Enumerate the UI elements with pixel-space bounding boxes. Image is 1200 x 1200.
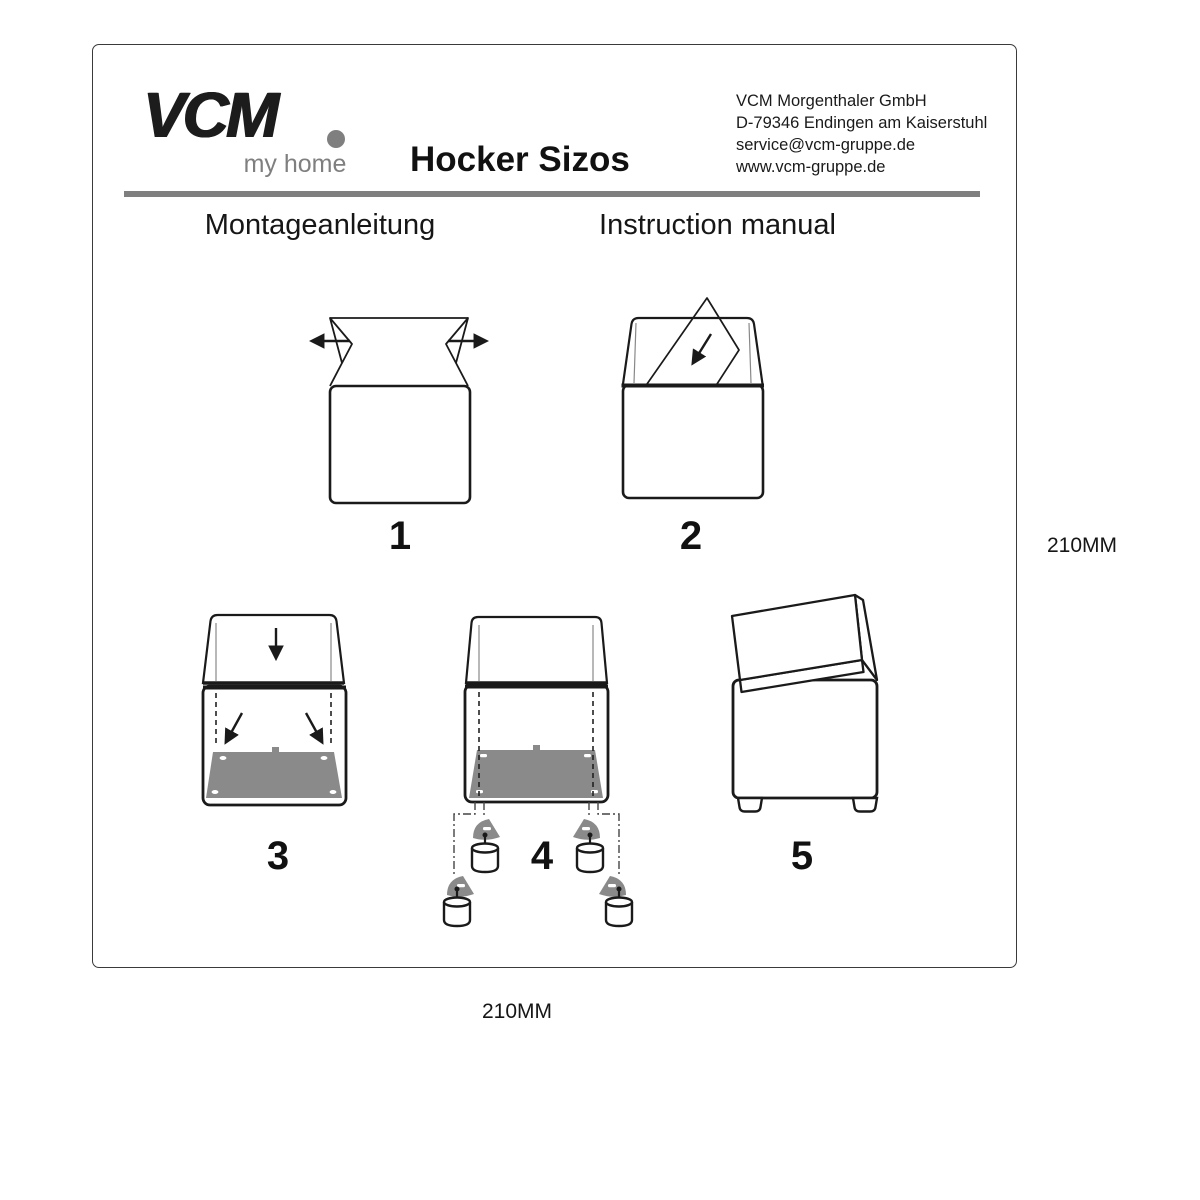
lid-part [466,617,607,683]
lid-part [203,615,344,683]
instruction-manual-page: { "header": { "logo": { "brand": "VCM", … [0,0,1200,1200]
box-body [330,386,470,503]
dimension-label-bottom: 210MM [482,1000,552,1024]
flap-left-fold [330,363,342,386]
logo-tagline: my home [240,150,350,179]
page-title: Hocker Sizos [410,140,630,180]
stool-lid [732,595,877,692]
brand-logo: VCM [143,78,276,152]
board-tab [533,745,540,751]
company-website: www.vcm-gruppe.de [736,156,987,178]
company-info-block: VCM Morgenthaler GmbH D-79346 Endingen a… [736,90,987,178]
heading-english: Instruction manual [565,209,870,242]
company-name: VCM Morgenthaler GmbH [736,90,987,112]
step-5-number: 5 [780,834,824,879]
open-flaps-top [623,318,763,384]
bottom-board [469,750,603,798]
step-1-number: 1 [378,514,422,559]
step-3-number: 3 [256,834,300,879]
flap-right-fold [456,363,468,386]
board-tab [272,747,279,753]
company-address: D-79346 Endingen am Kaiserstuhl [736,112,987,134]
box-body [623,385,763,498]
logo-dot-icon [327,130,345,148]
stool-body [733,680,877,798]
stool-feet [738,798,877,812]
company-email: service@vcm-gruppe.de [736,134,987,156]
header-divider [124,191,980,197]
heading-german: Montageanleitung [175,209,465,242]
step-2-number: 2 [669,514,713,559]
step-4-number: 4 [520,834,564,879]
dimension-label-right: 210MM [1047,534,1117,558]
step-4-diagram [430,590,660,930]
foot-inner-left [472,833,498,872]
